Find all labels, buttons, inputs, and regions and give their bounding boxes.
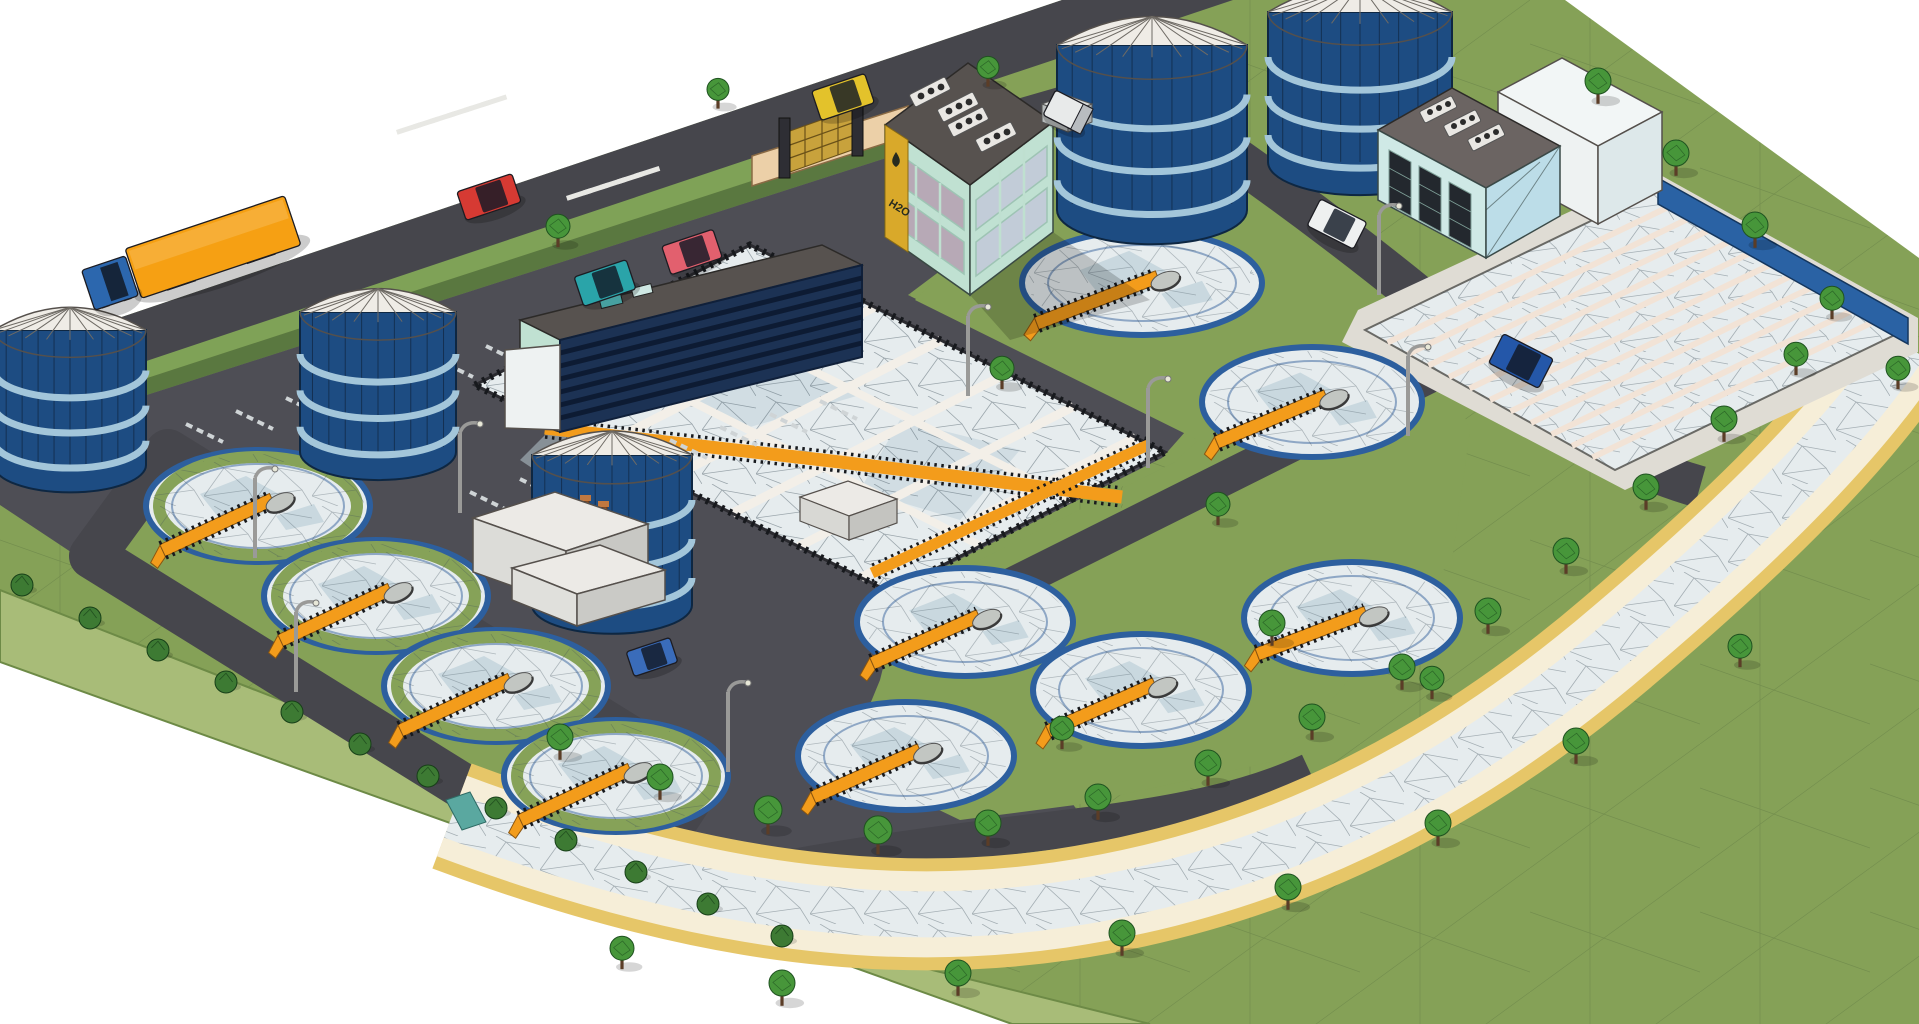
tree-canopy bbox=[707, 78, 729, 100]
tree-canopy bbox=[769, 970, 795, 996]
tree-shadow bbox=[996, 382, 1022, 392]
storage-tank bbox=[1057, 17, 1247, 245]
tree-canopy bbox=[1109, 920, 1135, 946]
tree-shadow bbox=[982, 838, 1011, 848]
tree-canopy bbox=[1784, 342, 1808, 366]
tree-shadow bbox=[761, 825, 792, 836]
render-viewport: H2O bbox=[0, 0, 1919, 1024]
storage-tank bbox=[300, 289, 456, 480]
tree-shadow bbox=[1282, 902, 1311, 912]
tree-canopy bbox=[1275, 874, 1301, 900]
tree-shadow bbox=[1482, 626, 1511, 636]
storage-tank bbox=[0, 307, 146, 492]
tree-canopy bbox=[1820, 286, 1844, 310]
lamp-head bbox=[272, 466, 278, 472]
bush-canopy bbox=[625, 861, 647, 883]
tree-canopy bbox=[546, 214, 570, 238]
tree-shadow bbox=[1670, 168, 1699, 178]
tree-shadow bbox=[1306, 732, 1335, 742]
tree-shadow bbox=[616, 962, 642, 972]
tree-canopy bbox=[610, 936, 634, 960]
tree-shadow bbox=[654, 792, 683, 802]
chimney-cap bbox=[580, 495, 591, 501]
tree-shadow bbox=[1734, 660, 1760, 670]
tree-shadow bbox=[1790, 368, 1816, 378]
tree-canopy bbox=[754, 796, 782, 824]
bush-canopy bbox=[485, 797, 507, 819]
bush-canopy bbox=[147, 639, 169, 661]
tree-canopy bbox=[1475, 598, 1501, 624]
gate-pillar bbox=[779, 118, 790, 178]
tree-canopy bbox=[945, 960, 971, 986]
tree-canopy bbox=[975, 810, 1001, 836]
tree-canopy bbox=[1259, 610, 1285, 636]
tree-canopy bbox=[1742, 212, 1768, 238]
tree-shadow bbox=[552, 240, 578, 250]
bush-canopy bbox=[11, 574, 33, 596]
tree-shadow bbox=[1396, 682, 1425, 692]
tree-shadow bbox=[1432, 838, 1461, 848]
tree-shadow bbox=[554, 752, 583, 762]
tree-canopy bbox=[1050, 716, 1074, 740]
tree-canopy bbox=[647, 764, 673, 790]
chimney-cap bbox=[598, 501, 609, 507]
lamp-head bbox=[477, 421, 483, 427]
tree-canopy bbox=[977, 56, 999, 78]
tree-shadow bbox=[1202, 778, 1231, 788]
lamp-head bbox=[1396, 203, 1402, 209]
lamp-head bbox=[313, 600, 319, 606]
tree-canopy bbox=[547, 724, 573, 750]
tree-shadow bbox=[1056, 742, 1082, 752]
tree-shadow bbox=[952, 988, 981, 998]
tree-canopy bbox=[1711, 406, 1737, 432]
tree-shadow bbox=[1640, 502, 1669, 512]
sign-panel bbox=[885, 125, 908, 252]
tree-shadow bbox=[1560, 566, 1589, 576]
h2o-sign: H2O bbox=[885, 125, 912, 252]
bush-canopy bbox=[771, 925, 793, 947]
bush-canopy bbox=[555, 829, 577, 851]
tree-shadow bbox=[1266, 638, 1295, 648]
tree-canopy bbox=[1585, 68, 1611, 94]
tree-canopy bbox=[1389, 654, 1415, 680]
tree-shadow bbox=[983, 81, 1007, 90]
bush-canopy bbox=[697, 893, 719, 915]
tree-canopy bbox=[1553, 538, 1579, 564]
tree-canopy bbox=[1633, 474, 1659, 500]
tree-canopy bbox=[864, 816, 892, 844]
tree-shadow bbox=[1718, 434, 1747, 444]
lamp-head bbox=[745, 680, 751, 686]
tree-canopy bbox=[1663, 140, 1689, 166]
tree-shadow bbox=[1116, 948, 1145, 958]
tree-shadow bbox=[1212, 518, 1238, 528]
tree-canopy bbox=[1425, 810, 1451, 836]
lamp-head bbox=[1165, 376, 1171, 382]
tree-shadow bbox=[1892, 382, 1918, 392]
tree-canopy bbox=[1085, 784, 1111, 810]
tree-shadow bbox=[1092, 812, 1121, 822]
tree-shadow bbox=[1592, 96, 1621, 106]
tree-shadow bbox=[1826, 312, 1852, 322]
bush-canopy bbox=[79, 607, 101, 629]
tree-canopy bbox=[1563, 728, 1589, 754]
tree-canopy bbox=[1206, 492, 1230, 516]
tree-canopy bbox=[990, 356, 1014, 380]
bush-canopy bbox=[215, 671, 237, 693]
plant-3d-render: H2O bbox=[0, 0, 1919, 1024]
tree-shadow bbox=[1570, 756, 1599, 766]
lamp-head bbox=[1425, 344, 1431, 350]
tree-canopy bbox=[1195, 750, 1221, 776]
tree-shadow bbox=[776, 998, 805, 1008]
bush-canopy bbox=[281, 701, 303, 723]
tree-shadow bbox=[871, 845, 902, 856]
bush-canopy bbox=[417, 765, 439, 787]
tree-shadow bbox=[713, 103, 737, 112]
tree-canopy bbox=[1299, 704, 1325, 730]
lamp-head bbox=[985, 304, 991, 310]
tree-canopy bbox=[1886, 356, 1910, 380]
bush-canopy bbox=[349, 733, 371, 755]
tree-shadow bbox=[1749, 240, 1778, 250]
tree-shadow bbox=[1426, 692, 1452, 702]
tree-canopy bbox=[1728, 634, 1752, 658]
louver-annex bbox=[505, 345, 560, 430]
